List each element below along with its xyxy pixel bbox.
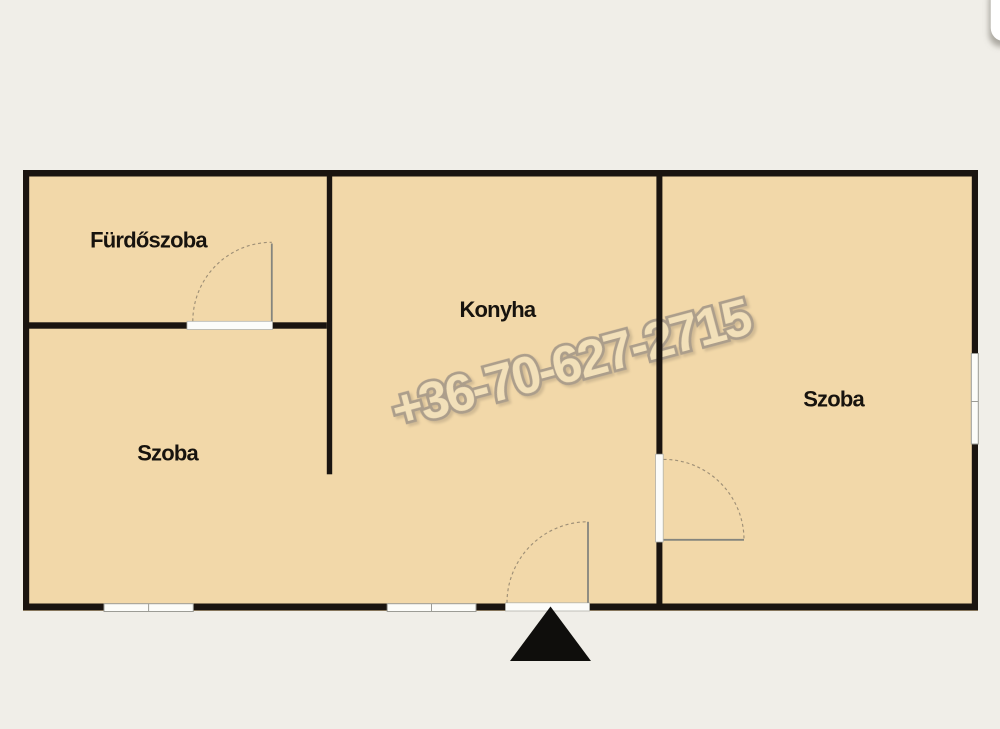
svg-text:Konyha: Konyha <box>459 297 536 322</box>
svg-text:Fürdőszoba: Fürdőszoba <box>90 228 208 253</box>
svg-text:Szoba: Szoba <box>803 386 865 411</box>
svg-text:Szoba: Szoba <box>137 440 199 465</box>
